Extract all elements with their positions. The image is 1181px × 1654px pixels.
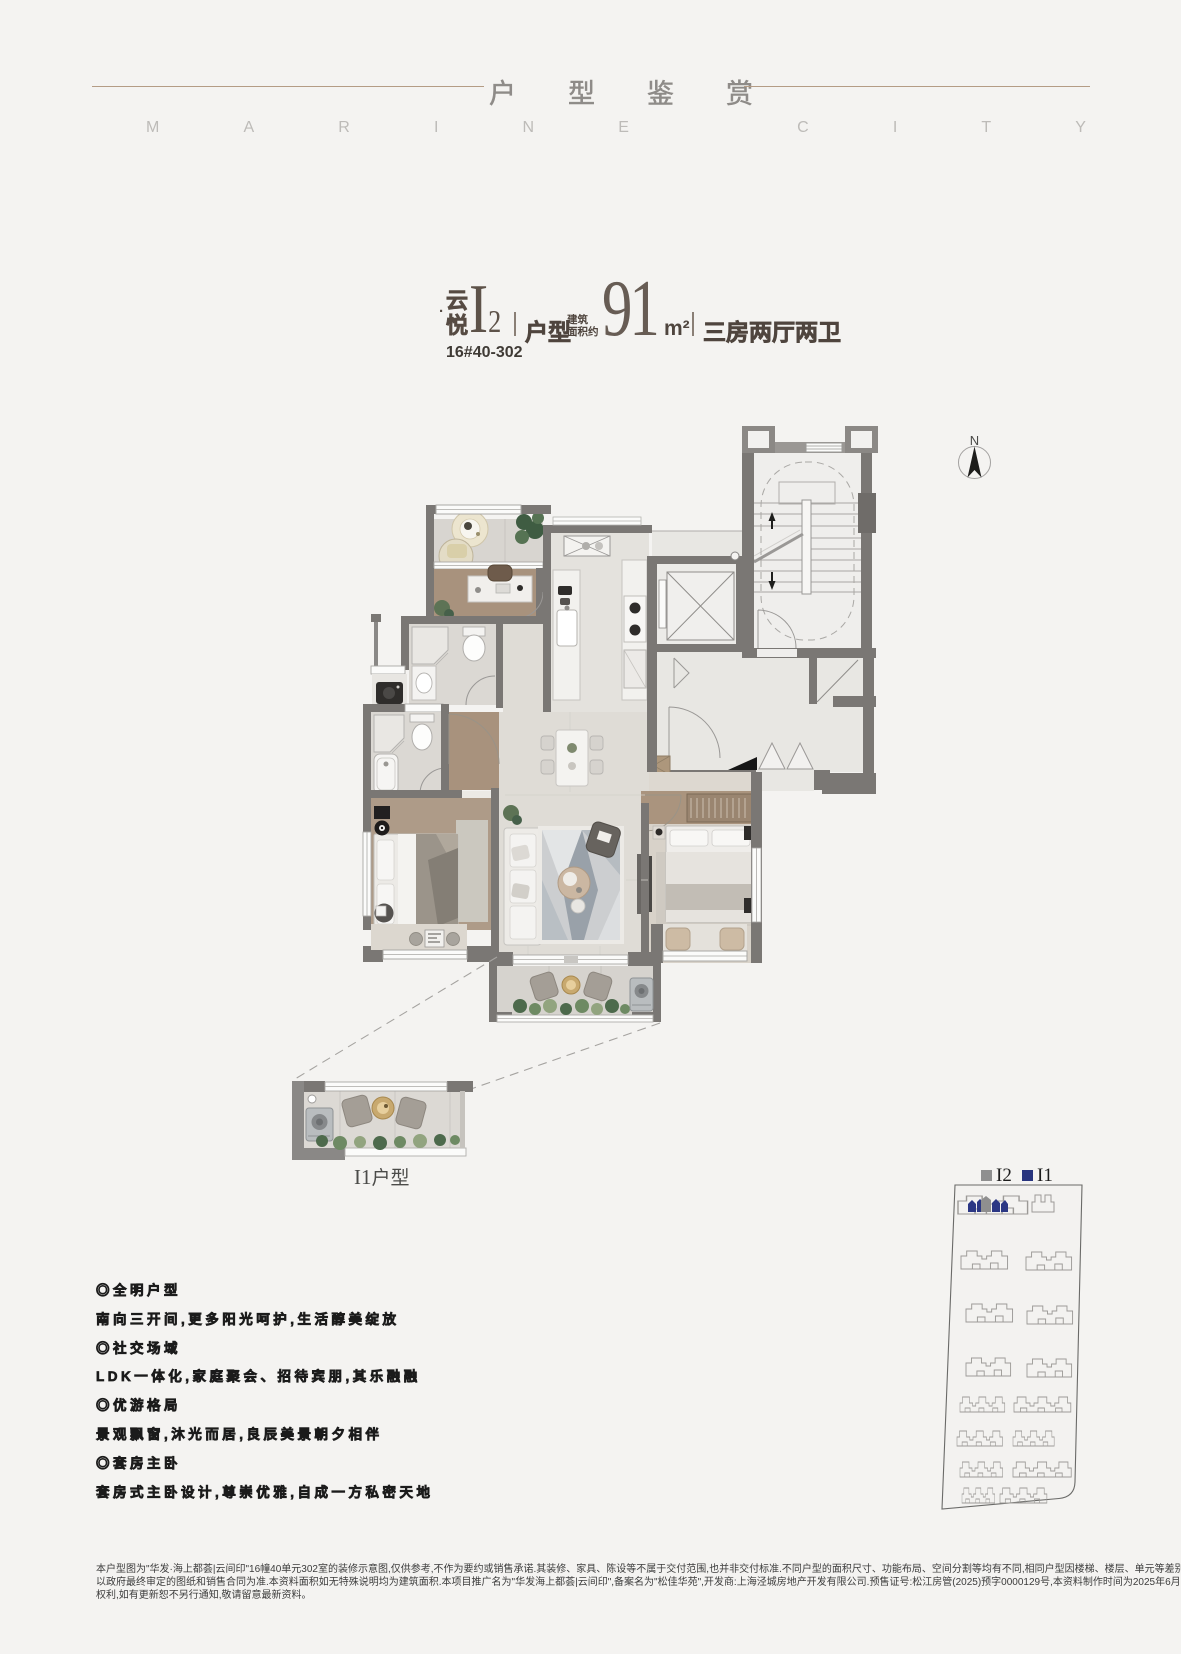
svg-text:I2: I2 (996, 1165, 1012, 1186)
svg-text:I1: I1 (1037, 1165, 1053, 1186)
svg-text:N: N (970, 433, 979, 448)
